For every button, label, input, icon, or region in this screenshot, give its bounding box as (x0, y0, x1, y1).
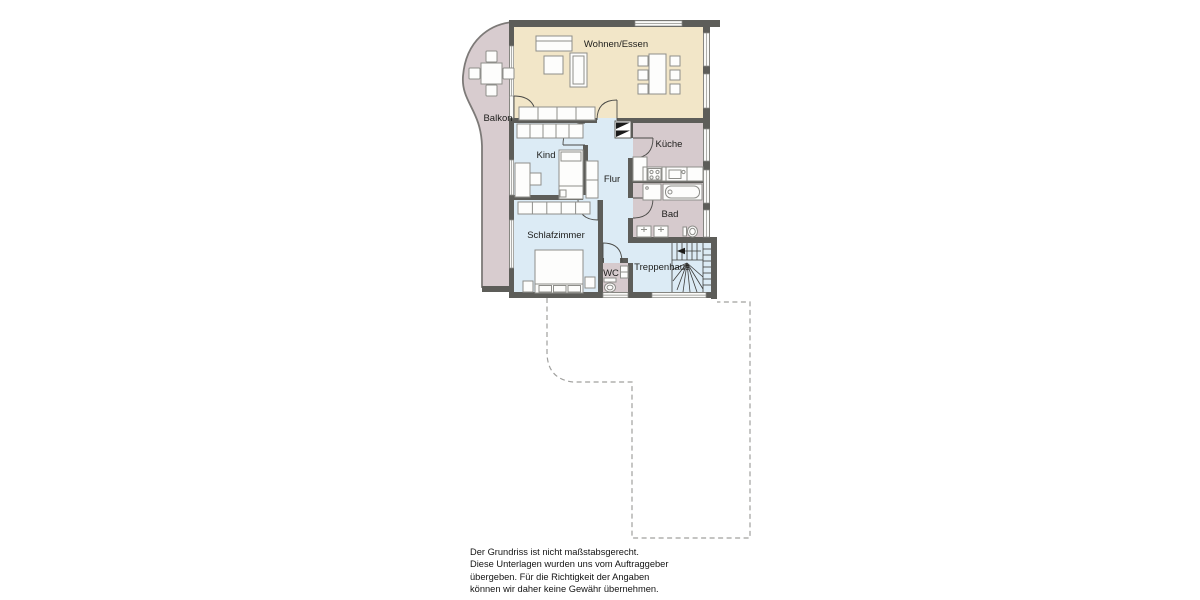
kitchen-sink (669, 170, 681, 179)
sofa (536, 36, 572, 51)
wardrobe-kind (517, 124, 583, 138)
disclaimer-line: übergeben. Für die Richtigkeit der Angab… (470, 571, 668, 583)
toilet-bad (683, 226, 698, 237)
bathtub (663, 184, 702, 200)
nightstand-left (523, 281, 533, 292)
floor-plan-page: Wohnen/Essen Balkon Kind Flur Küche Bad … (0, 0, 1200, 600)
disclaimer-line: können wir daher keine Gewähr übernehmen… (470, 583, 668, 595)
room-label-schlafzimmer: Schlafzimmer (527, 230, 585, 241)
room-label-balkon: Balkon (483, 113, 512, 124)
disclaimer-line: Der Grundriss ist nicht maßstabsgerecht. (470, 546, 668, 558)
disclaimer: Der Grundriss ist nicht maßstabsgerecht.… (470, 546, 668, 595)
shaft-symbol (615, 121, 631, 138)
disclaimer-line: Diese Unterlagen wurden uns vom Auftragg… (470, 558, 668, 570)
nightstand-right (585, 277, 595, 288)
shower (643, 184, 661, 200)
wardrobe-schlafzimmer (518, 202, 590, 214)
bed-kind (559, 150, 583, 199)
room-label-wohnen-essen: Wohnen/Essen (584, 39, 648, 50)
floor-plan: Wohnen/Essen Balkon Kind Flur Küche Bad … (0, 0, 1200, 600)
hall-cabinet (586, 161, 598, 198)
room-label-wc: WC (603, 268, 619, 279)
dining-table (638, 54, 680, 94)
coffee-table (544, 56, 563, 74)
wc-sink (621, 266, 629, 278)
wardrobe-wohnen (519, 107, 595, 120)
room-label-kueche: Küche (656, 139, 683, 150)
room-label-bad: Bad (662, 209, 679, 220)
room-label-treppenhaus: Treppenhaus (634, 262, 690, 273)
armchair (570, 53, 587, 87)
toilet-wc (604, 278, 616, 292)
room-label-kind: Kind (536, 150, 555, 161)
dashed-outline (547, 298, 750, 538)
room-label-flur: Flur (604, 174, 620, 185)
